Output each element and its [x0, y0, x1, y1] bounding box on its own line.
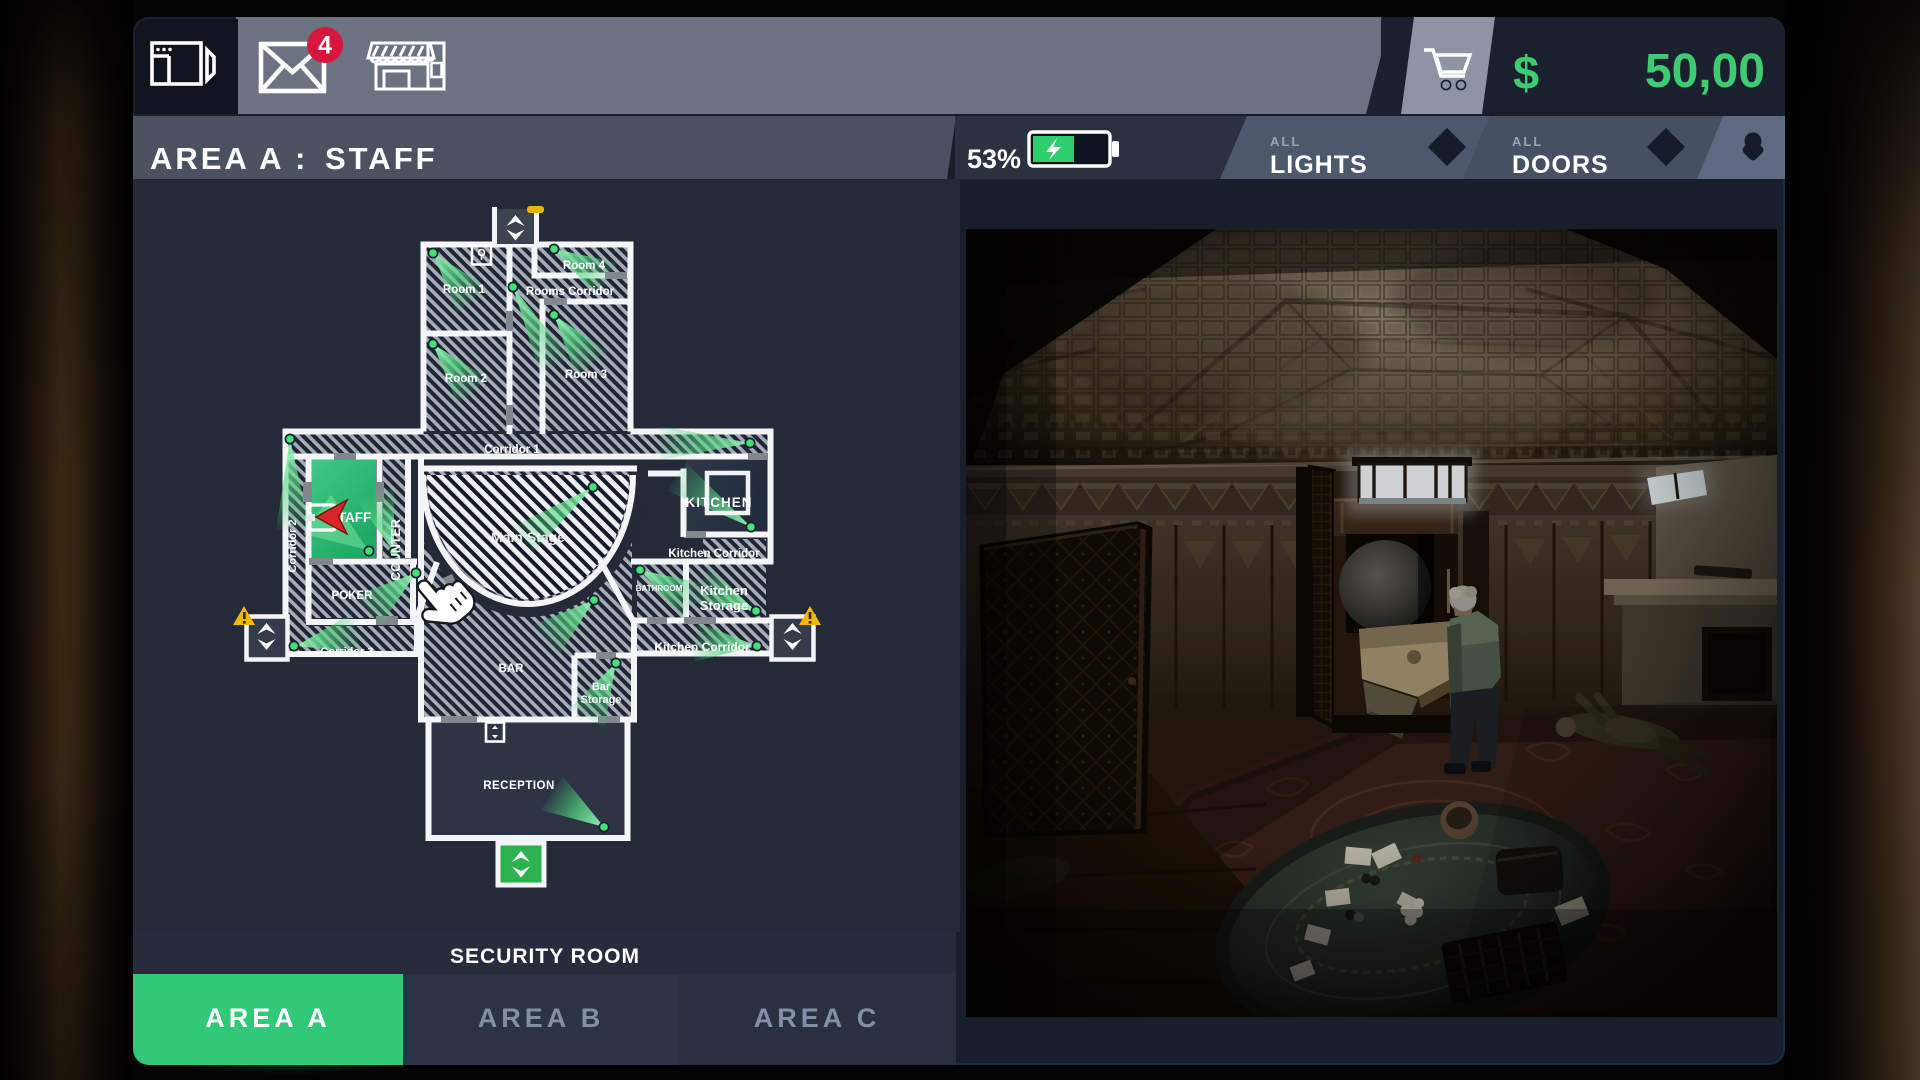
svg-text:Room 1: Room 1 — [443, 284, 486, 296]
svg-text:Storage: Storage — [581, 694, 622, 706]
svg-text:Bar: Bar — [592, 681, 611, 693]
svg-text:Room 2: Room 2 — [445, 373, 487, 385]
svg-text:Corridor 1: Corridor 1 — [484, 444, 540, 456]
svg-text:Corridor 2: Corridor 2 — [287, 519, 299, 572]
svg-text:Corridor 3: Corridor 3 — [320, 646, 373, 658]
svg-text:Storage: Storage — [700, 598, 748, 613]
svg-text:BATHROOM: BATHROOM — [636, 584, 683, 593]
svg-text:Room 3: Room 3 — [565, 369, 607, 381]
svg-text:Main Stage: Main Stage — [491, 529, 565, 545]
svg-text:Kitchen: Kitchen — [700, 583, 748, 598]
svg-text:Kitchen Corridor: Kitchen Corridor — [654, 640, 750, 654]
svg-text:Rooms Corridor: Rooms Corridor — [526, 286, 615, 298]
svg-text:BAR: BAR — [499, 663, 525, 675]
svg-text:Room 4: Room 4 — [563, 260, 606, 272]
svg-text:4: 4 — [318, 32, 332, 60]
svg-text:POKER: POKER — [332, 590, 374, 602]
svg-text:COUNTER: COUNTER — [389, 519, 403, 581]
svg-text:Kitchen Corridor: Kitchen Corridor — [668, 548, 760, 560]
svg-text:KITCHEN: KITCHEN — [686, 495, 753, 510]
svg-text:RECEPTION: RECEPTION — [483, 780, 555, 792]
